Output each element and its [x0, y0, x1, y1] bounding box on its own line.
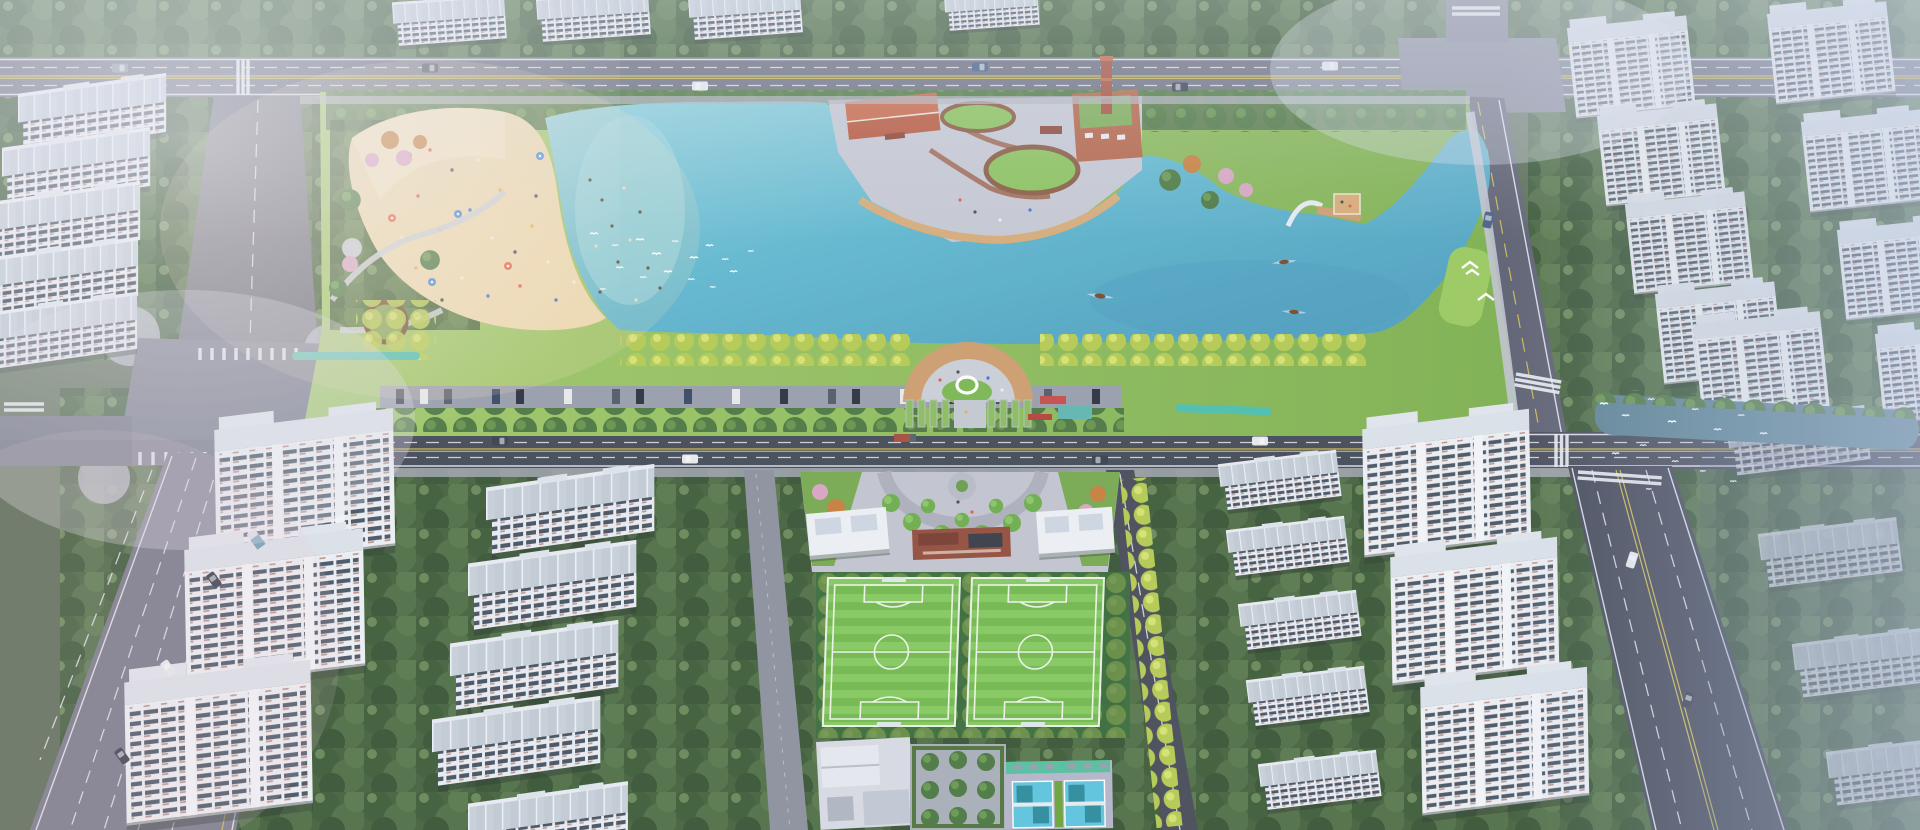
masterplan-scene — [0, 0, 1920, 830]
aerial-rendering-canvas — [0, 0, 1920, 830]
atmosphere-overlays — [0, 0, 1920, 830]
global-film — [0, 0, 1920, 830]
